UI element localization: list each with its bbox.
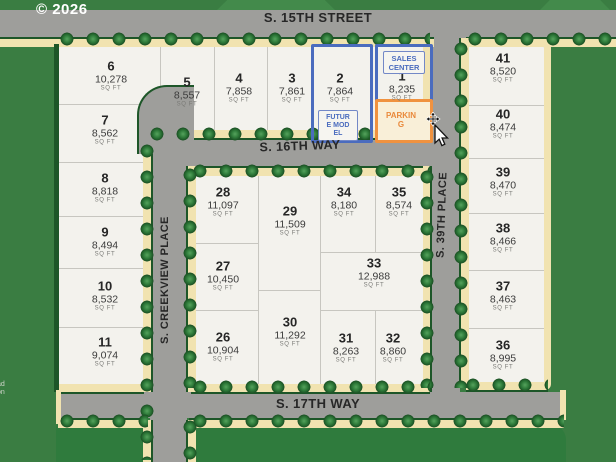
lot-line <box>468 213 544 214</box>
sidewalk <box>544 40 551 390</box>
tree-row <box>418 168 436 388</box>
lot-line <box>258 290 320 291</box>
street-label-s-17th: S. 17TH WAY <box>238 396 398 411</box>
lot-label-32[interactable]: 328,860SQ FT <box>380 332 406 365</box>
terrain-shape <box>540 0 610 10</box>
sales-center-tag[interactable]: SALESCENTER <box>383 51 425 74</box>
lot-label-8[interactable]: 88,818SQ FT <box>92 172 118 205</box>
lot-label-33[interactable]: 3312,988SQ FT <box>358 257 390 290</box>
parking-label: PARKING <box>386 111 416 129</box>
lot-label-38[interactable]: 388,466SQ FT <box>490 222 516 255</box>
move-icon <box>426 112 440 126</box>
mouse-cursor <box>424 112 450 148</box>
lot-line <box>320 252 430 253</box>
tree-row <box>58 412 148 430</box>
lot-label-6[interactable]: 610,278SQ FT <box>95 60 127 93</box>
lot-label-3[interactable]: 37,861SQ FT <box>279 72 305 105</box>
lot-label-11[interactable]: 119,074SQ FT <box>92 336 118 369</box>
lot-line <box>468 270 544 271</box>
tree-row <box>191 412 564 430</box>
lot-label-30[interactable]: 3011,292SQ FT <box>274 316 305 349</box>
site-plan-map: 610,278SQ FT58,557SQ FT47,858SQ FT37,861… <box>0 0 616 462</box>
lot-label-27[interactable]: 2710,450SQ FT <box>207 260 239 293</box>
lot-label-10[interactable]: 108,532SQ FT <box>92 280 118 313</box>
lot-label-39[interactable]: 398,470SQ FT <box>490 166 516 199</box>
sidewalk <box>58 384 144 394</box>
lot-label-36[interactable]: 368,995SQ FT <box>490 339 516 372</box>
lot-label-37[interactable]: 378,463SQ FT <box>490 280 516 313</box>
curb-strip <box>54 44 59 392</box>
lot-line <box>468 158 544 159</box>
lot-label-7[interactable]: 78,562SQ FT <box>92 114 118 147</box>
lot-label-29[interactable]: 2911,509SQ FT <box>274 205 305 238</box>
tree-row <box>191 378 430 396</box>
tree-row <box>466 30 614 48</box>
street-label-creekview: S. CREEKVIEW PLACE <box>159 210 173 350</box>
lot-label-35[interactable]: 358,574SQ FT <box>386 186 412 219</box>
lot-label-26[interactable]: 2610,904SQ FT <box>207 331 239 364</box>
lot-line <box>468 328 544 329</box>
lot-label-41[interactable]: 418,520SQ FT <box>490 52 516 85</box>
lot-label-5[interactable]: 58,557SQ FT <box>174 76 200 109</box>
street-label-s-15th: S. 15TH STREET <box>238 10 398 25</box>
tree-row <box>191 162 430 180</box>
lot-line <box>320 310 430 311</box>
lot-label-4[interactable]: 47,858SQ FT <box>226 72 252 105</box>
lot-label-28[interactable]: 2811,097SQ FT <box>207 186 238 219</box>
lot-label-2[interactable]: 27,864SQ FT <box>327 72 353 105</box>
copyright-text: © 2026 <box>36 1 88 18</box>
lot-line <box>320 166 321 392</box>
lot-label-31[interactable]: 318,263SQ FT <box>333 332 359 365</box>
lot-label-40[interactable]: 408,474SQ FT <box>490 108 516 141</box>
lot-line <box>258 166 259 392</box>
lot-label-34[interactable]: 348,180SQ FT <box>331 186 357 219</box>
lot-line <box>193 243 258 244</box>
tree-row <box>181 166 199 388</box>
lot-label-1[interactable]: 18,235SQ FT <box>389 70 415 103</box>
lot-label-9[interactable]: 98,494SQ FT <box>92 226 118 259</box>
edge-cutoff-text: adon <box>0 381 5 397</box>
tree-row <box>464 376 548 394</box>
tree-row <box>452 40 470 388</box>
lot-line <box>193 310 258 311</box>
pointer-arrow-icon <box>435 125 448 146</box>
